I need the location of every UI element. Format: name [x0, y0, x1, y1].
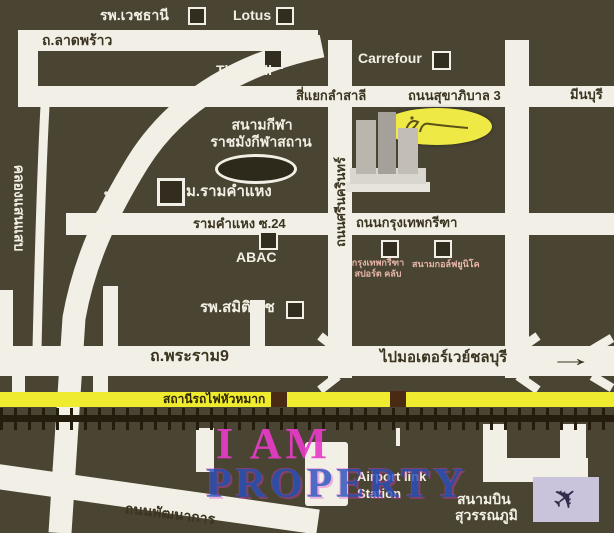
- airplane-icon: ✈: [546, 479, 585, 519]
- carrefour-label: Carrefour: [358, 51, 422, 66]
- minor-street: [93, 372, 108, 394]
- airportlink-connector-line: [396, 428, 400, 446]
- vejthani-hospital-label: รพ.เวชธานี: [100, 8, 169, 23]
- airportlink-station-marker: [390, 391, 406, 407]
- sukhaphiban3-label: ถนนสุขาภิบาล 3: [408, 89, 501, 103]
- building-tower: [356, 120, 376, 174]
- airport-symbol-box: ✈: [533, 477, 599, 522]
- watermark-line2: PROPERTY: [206, 460, 468, 508]
- minor-street: [0, 290, 13, 348]
- condo-building-image: [350, 110, 430, 194]
- ram-university-label: ม.รามคำแหง: [186, 184, 272, 200]
- saensaep-canal-label: คลองแสนแสบ: [12, 165, 27, 252]
- motorway-label: ไปมอเตอร์เวย์ชลบุรี: [380, 350, 507, 366]
- sportclub-marker: [381, 240, 399, 258]
- huamak-station-label: สถานีรถไฟหัวหมาก: [163, 393, 265, 406]
- samitivej-label: รพ.สมิติเวช: [200, 300, 275, 316]
- srinagarindra-label: ถนนศรีนครินทร์: [334, 157, 348, 247]
- the-mall-label: The Mall: [216, 63, 272, 78]
- property-location-map: รพ.เวชธานี Lotus ถ.ลาดพร้าว The Mall Car…: [0, 0, 614, 533]
- ram-university-marker: [157, 178, 185, 206]
- minor-street: [103, 286, 118, 348]
- minor-street: [12, 372, 25, 394]
- minburi-label: มีนบุรี: [570, 88, 603, 102]
- golf-label: สนามกอล์ฟยูนิโค: [412, 260, 480, 269]
- yellow-rail-road: [0, 392, 614, 407]
- sportclub-label-line2: สปอร์ต คลับ: [354, 269, 401, 278]
- abac-marker: [259, 231, 278, 250]
- sportclub-label-line1: กรุงเทพกรีฑา: [352, 258, 404, 267]
- ladprao-road-label: ถ.ลาดพร้าว: [42, 33, 112, 48]
- rama9-label: ถ.พระราม9: [150, 349, 229, 366]
- suvarnabhumi-label-line2: สุวรรณภูมิ: [455, 508, 518, 523]
- east-vertical-road: [505, 40, 529, 378]
- soi24-label: รามคำแหง ซ.24: [193, 217, 286, 231]
- lotus-marker: [276, 7, 294, 25]
- lamsali-junction-label: สี่แยกลำสาลี: [296, 89, 366, 103]
- huamak-station-marker: [271, 392, 287, 407]
- golf-marker: [434, 240, 452, 258]
- stadium-oval: [215, 154, 297, 184]
- stadium-label-line2: ราชมังกีฬาสถาน: [210, 135, 311, 150]
- vejthani-marker: [188, 7, 206, 25]
- motorway-arrow-icon: →: [548, 346, 594, 371]
- stadium-label-line1: สนามกีฬา: [231, 118, 292, 133]
- carrefour-marker: [432, 51, 451, 70]
- lotus-label: Lotus: [233, 8, 271, 23]
- samitivej-marker: [286, 301, 304, 319]
- krungthep-kreetha-label: ถนนกรุงเทพกรีฑา: [356, 216, 457, 230]
- abac-label: ABAC: [236, 250, 276, 265]
- building-tower: [398, 128, 418, 174]
- building-tower: [378, 112, 396, 174]
- saensaep-canal-line: [37, 106, 45, 350]
